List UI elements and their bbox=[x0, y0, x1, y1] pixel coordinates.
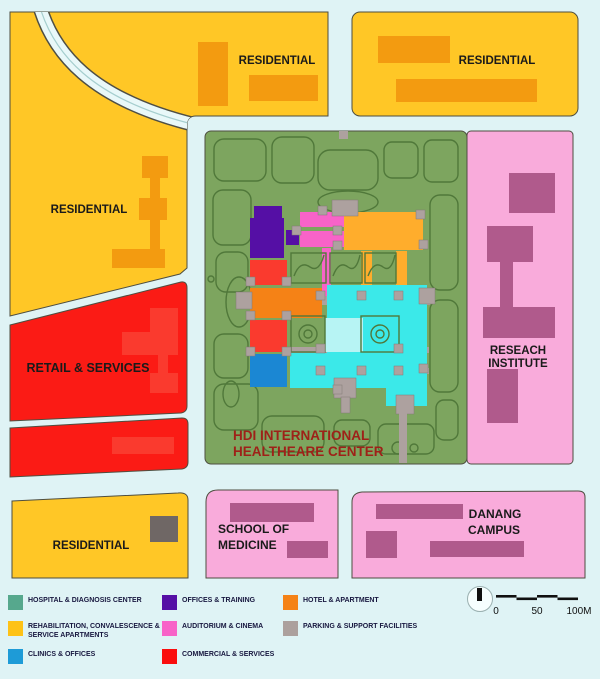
building bbox=[139, 198, 167, 220]
building bbox=[142, 156, 168, 178]
legend-item-clinics: CLINICS & OFFICES bbox=[8, 649, 160, 664]
label-retail-services: RETAIL & SERVICES bbox=[27, 361, 150, 375]
legend-item-hospital: HOSPITAL & DIAGNOSIS CENTER bbox=[8, 595, 160, 610]
site-plan-page: RESIDENTIAL RESIDENTIAL RESIDENTIAL RETA… bbox=[0, 0, 600, 679]
label-school-line2: MEDICINE bbox=[218, 538, 277, 552]
scale-tick-100: 100M bbox=[566, 606, 591, 617]
building bbox=[287, 541, 328, 558]
building bbox=[150, 516, 178, 542]
building bbox=[396, 79, 537, 102]
building-commercial bbox=[250, 260, 287, 285]
building bbox=[487, 226, 533, 262]
legend-label: HOTEL & APARTMENT bbox=[303, 595, 379, 606]
legend-item-commercial: COMMERCIAL & SERVICES bbox=[162, 649, 278, 664]
building bbox=[366, 531, 397, 558]
building bbox=[150, 220, 160, 249]
building bbox=[483, 307, 555, 338]
legend-label: REHABILITATION, CONVALESCENCE & SERVICE … bbox=[28, 621, 160, 640]
label-danang-line1: DANANG bbox=[469, 507, 522, 521]
clinics-swatch bbox=[8, 649, 23, 664]
building bbox=[112, 437, 174, 454]
building bbox=[122, 332, 178, 355]
legend-label: CLINICS & OFFICES bbox=[28, 649, 95, 660]
building bbox=[430, 541, 524, 557]
label-healthcare-center-line1: HDI INTERNATIONAL bbox=[233, 428, 369, 443]
building-rehabilitation bbox=[344, 212, 423, 250]
legend-label: COMMERCIAL & SERVICES bbox=[182, 649, 274, 660]
building-commercial bbox=[250, 320, 287, 352]
offices-swatch bbox=[162, 595, 177, 610]
building bbox=[509, 173, 555, 213]
building bbox=[378, 36, 450, 63]
commercial-swatch bbox=[162, 649, 177, 664]
scale-tick-0: 0 bbox=[493, 606, 499, 617]
building bbox=[150, 373, 178, 393]
legend-item-rehabilitation: REHABILITATION, CONVALESCENCE & SERVICE … bbox=[8, 621, 160, 640]
scale-and-north: 0 50 100M bbox=[452, 583, 600, 628]
hotel-swatch bbox=[283, 595, 298, 610]
building bbox=[198, 42, 228, 106]
hospital-swatch bbox=[8, 595, 23, 610]
north-indicator bbox=[468, 587, 493, 612]
legend-item-parking: PARKING & SUPPORT FACILITIES bbox=[283, 621, 425, 636]
legend-item-auditorium: AUDITORIUM & CINEMA bbox=[162, 621, 278, 636]
label-residential-bottom: RESIDENTIAL bbox=[53, 540, 130, 552]
legend-label: OFFICES & TRAINING bbox=[182, 595, 255, 606]
label-residential-top-right: RESIDENTIAL bbox=[459, 55, 536, 67]
building bbox=[112, 249, 165, 268]
master-plan-map: RESIDENTIAL RESIDENTIAL RESIDENTIAL RETA… bbox=[0, 0, 600, 585]
building bbox=[150, 178, 160, 198]
legend-label: HOSPITAL & DIAGNOSIS CENTER bbox=[28, 595, 142, 606]
label-research-line1: RESEACH bbox=[490, 345, 546, 357]
scale-bar: 0 50 100M bbox=[493, 595, 591, 617]
building-offices-training bbox=[254, 206, 282, 220]
legend-item-hotel: HOTEL & APARTMENT bbox=[283, 595, 425, 610]
building-clinics-offices bbox=[250, 354, 287, 387]
parking-swatch bbox=[283, 621, 298, 636]
hospital-inner-court bbox=[325, 318, 363, 352]
building bbox=[249, 75, 318, 101]
label-danang-line2: CAMPUS bbox=[468, 523, 520, 537]
building bbox=[150, 308, 178, 332]
auditorium-swatch bbox=[162, 621, 177, 636]
building bbox=[500, 262, 513, 308]
building bbox=[230, 503, 314, 522]
legend-label: AUDITORIUM & CINEMA bbox=[182, 621, 263, 632]
rehabilitation-swatch bbox=[8, 621, 23, 636]
label-research-line2: INSTITUTE bbox=[488, 358, 548, 370]
legend-label: PARKING & SUPPORT FACILITIES bbox=[303, 621, 417, 632]
building bbox=[487, 369, 518, 423]
label-residential-left: RESIDENTIAL bbox=[51, 204, 128, 216]
legend-item-offices: OFFICES & TRAINING bbox=[162, 595, 278, 610]
label-healthcare-center-line2: HEALTHEARE CENTER bbox=[233, 444, 384, 459]
building-offices-training bbox=[250, 218, 284, 258]
scale-tick-50: 50 bbox=[531, 606, 543, 617]
building bbox=[158, 355, 168, 373]
label-school-line1: SCHOOL OF bbox=[218, 522, 289, 536]
label-residential-top-left: RESIDENTIAL bbox=[239, 55, 316, 67]
building bbox=[376, 504, 463, 519]
